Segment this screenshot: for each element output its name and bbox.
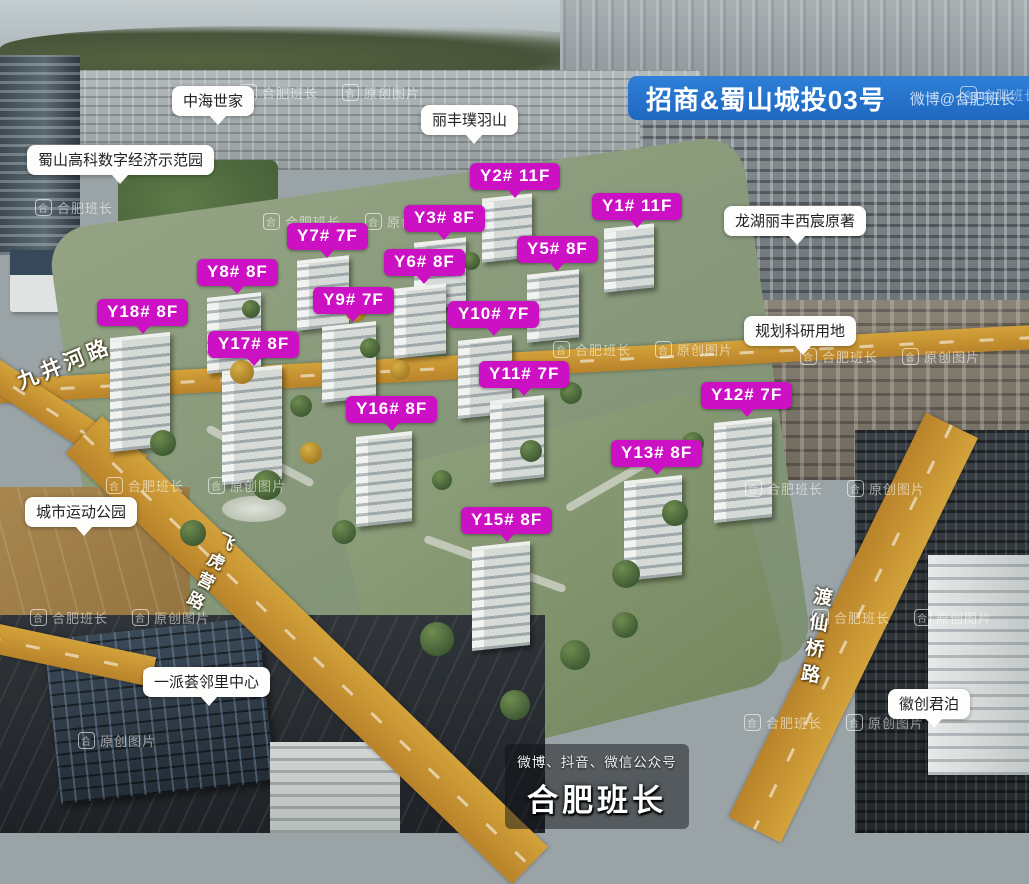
landmark-planned-research-land: 规划科研用地: [744, 316, 856, 346]
social-account-name: 合肥班长: [509, 775, 685, 820]
tree: [290, 395, 312, 417]
building-tag-y12: Y12# 7F: [701, 382, 792, 409]
watermark-brand: 合肥班长: [766, 713, 822, 732]
watermark-brand: 合肥班长: [52, 608, 108, 627]
building-y17: [222, 365, 282, 485]
watermark-tag: 原创图片: [924, 347, 980, 366]
watermark: 合合肥班长合原创图片: [553, 340, 733, 359]
watermark-tag: 原创图片: [154, 608, 210, 627]
watermark-logo-icon: 合: [744, 714, 761, 731]
tree: [242, 300, 260, 318]
landmark-shushan-hi-tech-park: 蜀山高科数字经济示范园: [27, 145, 214, 175]
watermark-logo-icon: 合: [263, 213, 280, 230]
watermark-tag: 原创图片: [936, 608, 992, 627]
watermark-logo-icon: 合: [914, 609, 931, 626]
watermark-tag: 原创图片: [869, 479, 925, 498]
building-tag-y10: Y10# 7F: [448, 301, 539, 328]
tree: [612, 612, 638, 638]
central-plaza: [222, 496, 286, 522]
building-tag-y17: Y17# 8F: [208, 331, 299, 358]
building-tag-y6: Y6# 8F: [384, 249, 465, 276]
landmark-lifeng-puyushan: 丽丰璞羽山: [421, 105, 518, 135]
landmark-city-sports-park: 城市运动公园: [25, 497, 137, 527]
social-footer: 微博、抖音、微信公众号 合肥班长: [505, 744, 689, 829]
watermark: 合合肥班长: [35, 198, 113, 217]
watermark: 合合肥班长合原创图片: [745, 479, 925, 498]
watermark-tag: 原创图片: [230, 476, 286, 495]
building-y12: [714, 417, 772, 523]
watermark-logo-icon: 合: [745, 480, 762, 497]
watermark-brand: 合肥班长: [575, 340, 631, 359]
tree: [420, 622, 454, 656]
watermark-logo-icon: 合: [960, 86, 977, 103]
tree: [332, 520, 356, 544]
building-tag-y9: Y9# 7F: [313, 287, 394, 314]
watermark-logo-icon: 合: [342, 84, 359, 101]
watermark-logo-icon: 合: [30, 609, 47, 626]
watermark-brand: 合肥班长: [57, 198, 113, 217]
tree: [662, 500, 688, 526]
landmark-longhu-xichen: 龙湖丽丰西宸原著: [724, 206, 866, 236]
landmark-zhonghai-shijia: 中海世家: [172, 86, 254, 116]
watermark-tag: 原创图片: [100, 731, 156, 750]
building-y9: [322, 321, 376, 403]
watermark-logo-icon: 合: [78, 732, 95, 749]
building-y1: [604, 223, 654, 292]
building-tag-y1: Y1# 11F: [592, 193, 682, 220]
building-y15: [472, 541, 530, 651]
watermark-brand: 合肥班长: [822, 347, 878, 366]
watermark-brand: 合肥班长: [834, 608, 890, 627]
banner-title: 招商&蜀山城投03号: [646, 80, 886, 117]
building-tag-y8: Y8# 8F: [197, 259, 278, 286]
landmark-yipaihui-center: 一派荟邻里中心: [143, 667, 270, 697]
building-tag-y7: Y7# 7F: [287, 223, 368, 250]
tree: [612, 560, 640, 588]
watermark-tag: 原创图片: [677, 340, 733, 359]
building-tag-y3: Y3# 8F: [404, 205, 485, 232]
building-tag-y5: Y5# 8F: [517, 236, 598, 263]
tree: [560, 640, 590, 670]
watermark: 合合肥班长: [960, 85, 1029, 104]
tree: [360, 338, 380, 358]
watermark-logo-icon: 合: [208, 477, 225, 494]
watermark-brand: 合肥班长: [262, 83, 318, 102]
watermark-logo-icon: 合: [847, 480, 864, 497]
landmark-huichuang-junbo: 徽创君泊: [888, 689, 970, 719]
tree: [180, 520, 206, 546]
watermark-logo-icon: 合: [132, 609, 149, 626]
building-tag-y15: Y15# 8F: [461, 507, 552, 534]
autumn-tree: [300, 442, 322, 464]
watermark: 合合肥班长合原创图片: [30, 608, 210, 627]
social-channels-text: 微博、抖音、微信公众号: [509, 751, 685, 771]
watermark-logo-icon: 合: [812, 609, 829, 626]
watermark-logo-icon: 合: [655, 341, 672, 358]
watermark-logo-icon: 合: [106, 477, 123, 494]
watermark-brand: 合肥班长: [767, 479, 823, 498]
building-y6: [394, 283, 446, 358]
watermark-tag: 原创图片: [364, 83, 420, 102]
building-y11: [490, 395, 544, 483]
watermark-brand: 合肥班长: [128, 476, 184, 495]
watermark: 合合肥班长合原创图片: [240, 83, 420, 102]
east-white-tower: [928, 555, 1029, 775]
watermark: 合合肥班长合原创图片: [812, 608, 992, 627]
tree: [432, 470, 452, 490]
watermark: 合合肥班长合原创图片: [800, 347, 980, 366]
building-tag-y13: Y13# 8F: [611, 440, 702, 467]
watermark-logo-icon: 合: [553, 341, 570, 358]
building-y16: [356, 431, 412, 527]
tree: [500, 690, 530, 720]
autumn-tree: [390, 360, 410, 380]
watermark-logo-icon: 合: [902, 348, 919, 365]
building-tag-y2: Y2# 11F: [470, 163, 560, 190]
watermark-brand: 合肥班长: [982, 85, 1029, 104]
building-tag-y11: Y11# 7F: [479, 361, 569, 388]
tree: [520, 440, 542, 462]
watermark-logo-icon: 合: [35, 199, 52, 216]
building-tag-y16: Y16# 8F: [346, 396, 437, 423]
building-tag-y18: Y18# 8F: [97, 299, 188, 326]
watermark-logo-icon: 合: [846, 714, 863, 731]
watermark: 合合肥班长合原创图片: [106, 476, 286, 495]
tree: [150, 430, 176, 456]
watermark: 合原创图片: [78, 731, 156, 750]
